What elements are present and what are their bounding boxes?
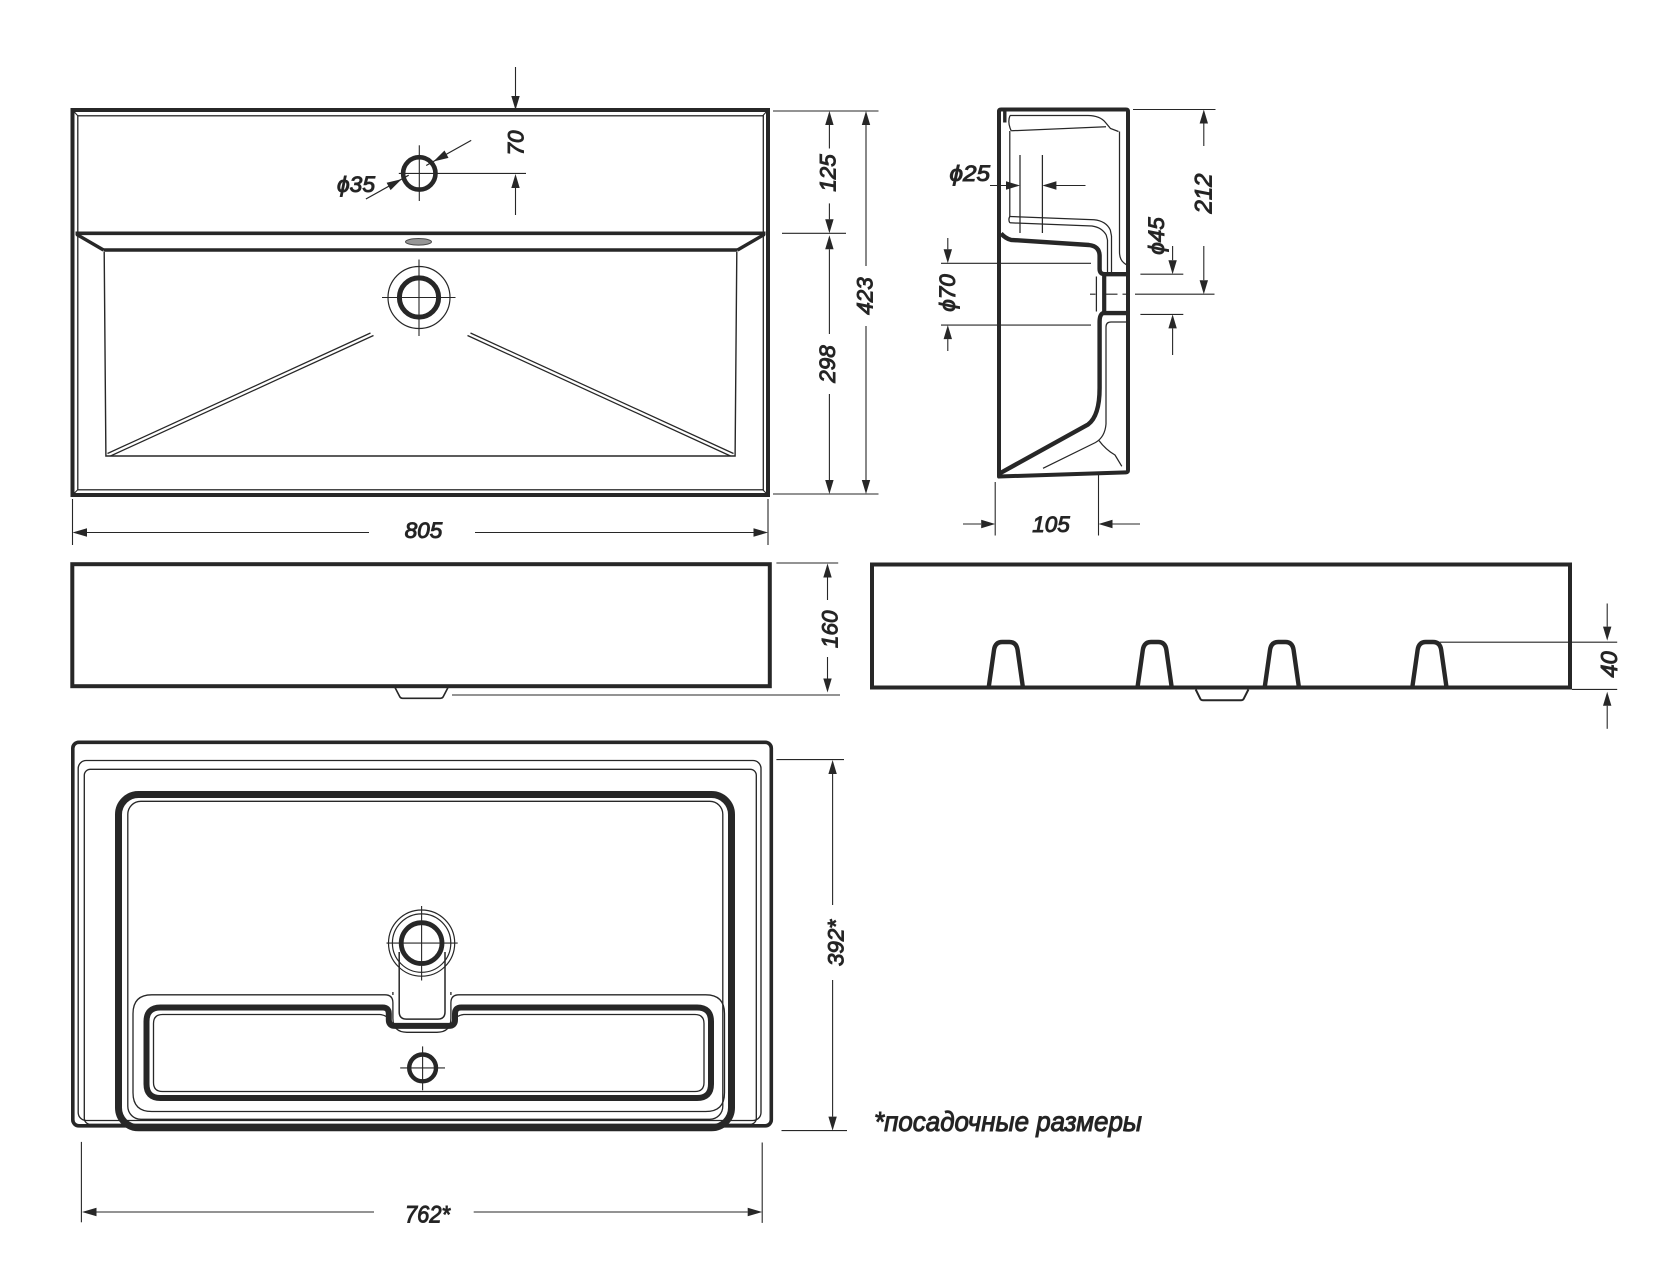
svg-text:160: 160 [818,610,843,648]
svg-text:*посадочные размеры: *посадочные размеры [874,1106,1142,1137]
svg-text:70: 70 [504,130,529,156]
svg-text:40: 40 [1596,651,1622,677]
svg-text:ϕ45: ϕ45 [1144,217,1169,255]
svg-text:105: 105 [1032,512,1070,537]
svg-text:ϕ35: ϕ35 [337,172,375,197]
svg-text:125: 125 [816,154,841,192]
svg-text:805: 805 [405,518,443,543]
svg-text:ϕ25: ϕ25 [950,161,991,186]
svg-text:762*: 762* [405,1202,451,1229]
svg-text:212: 212 [1191,173,1218,214]
svg-text:423: 423 [853,277,878,315]
svg-text:392*: 392* [824,919,849,967]
svg-text:298: 298 [815,345,840,384]
svg-text:ϕ70: ϕ70 [935,274,960,312]
